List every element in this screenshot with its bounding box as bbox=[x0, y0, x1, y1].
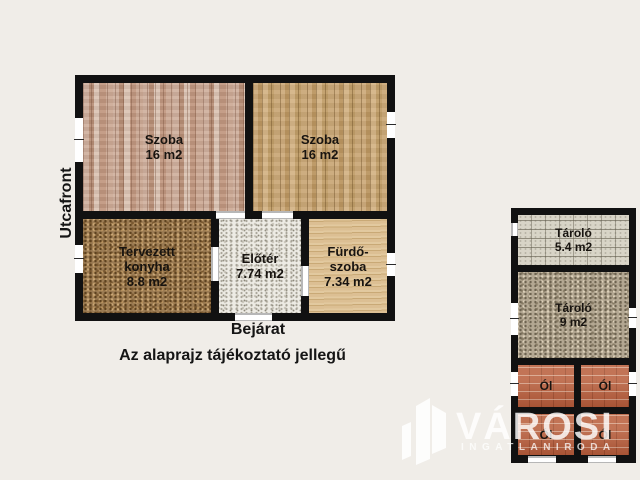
door-opening bbox=[301, 266, 309, 296]
door-opening bbox=[211, 247, 219, 281]
room-name: szoba bbox=[324, 259, 372, 274]
room-area: 9 m2 bbox=[555, 315, 592, 329]
door-opening bbox=[588, 456, 616, 463]
room-name: Tároló bbox=[555, 226, 592, 240]
door-opening bbox=[216, 211, 245, 219]
window-opening bbox=[387, 253, 395, 276]
window-opening bbox=[511, 372, 518, 396]
main-floor-plan: Szoba 16 m2 Szoba 16 m2 Tervezett konyha… bbox=[75, 75, 395, 321]
entrance-label: Bejárat bbox=[188, 321, 328, 339]
room-name: Ól bbox=[599, 428, 612, 442]
door-opening bbox=[528, 456, 556, 463]
room-area: 7.74 m2 bbox=[236, 266, 284, 281]
street-front-label: Utcafront bbox=[56, 148, 78, 258]
room-furdo: Fürdő- szoba 7.34 m2 bbox=[309, 219, 387, 313]
disclaimer-text: Az alaprajz tájékoztató jellegű bbox=[55, 347, 410, 365]
room-konyha: Tervezett konyha 8.8 m2 bbox=[83, 219, 211, 313]
room-pen-1: Ól bbox=[518, 365, 574, 407]
floor-plan-page: Szoba 16 m2 Szoba 16 m2 Tervezett konyha… bbox=[0, 0, 640, 480]
room-label: Tároló 5.4 m2 bbox=[555, 226, 592, 254]
door-opening bbox=[262, 211, 293, 219]
room-pen-2: Ól bbox=[581, 365, 629, 407]
room-area: 5.4 m2 bbox=[555, 240, 592, 254]
room-area: 8.8 m2 bbox=[119, 274, 175, 289]
room-name: Ól bbox=[540, 428, 553, 442]
outbuilding-floor-plan: Tároló 5.4 m2 Tároló 9 m2 Ól Ól Ól Ól bbox=[511, 208, 636, 463]
room-area: 7.34 m2 bbox=[324, 274, 372, 289]
room-pen-3: Ól bbox=[518, 414, 574, 455]
window-opening bbox=[629, 308, 636, 328]
room-label: Szoba 16 m2 bbox=[301, 132, 339, 162]
window-opening bbox=[387, 112, 395, 138]
window-opening bbox=[629, 372, 636, 396]
room-name: Szoba bbox=[301, 132, 339, 147]
room-name: Ól bbox=[599, 379, 612, 393]
window-opening bbox=[511, 303, 518, 335]
entrance-opening bbox=[235, 313, 272, 321]
room-name: konyha bbox=[119, 259, 175, 274]
room-label: Előtér 7.74 m2 bbox=[236, 251, 284, 281]
room-name: Tároló bbox=[555, 301, 592, 315]
room-label: Fürdő- szoba 7.34 m2 bbox=[324, 244, 372, 289]
room-eloter: Előtér 7.74 m2 bbox=[219, 219, 301, 313]
room-tarolo-small: Tároló 5.4 m2 bbox=[518, 215, 629, 265]
room-area: 16 m2 bbox=[145, 147, 183, 162]
room-szoba-left: Szoba 16 m2 bbox=[83, 83, 245, 211]
room-area: 16 m2 bbox=[301, 147, 339, 162]
buildings-icon bbox=[402, 396, 450, 468]
room-name: Előtér bbox=[236, 251, 284, 266]
door-opening bbox=[511, 223, 518, 236]
room-label: Tervezett konyha 8.8 m2 bbox=[119, 244, 175, 289]
room-pen-4: Ól bbox=[581, 414, 629, 455]
room-label: Tároló 9 m2 bbox=[555, 301, 592, 329]
room-name: Fürdő- bbox=[324, 244, 372, 259]
room-name: Ól bbox=[540, 379, 553, 393]
room-szoba-right: Szoba 16 m2 bbox=[253, 83, 387, 211]
room-name: Szoba bbox=[145, 132, 183, 147]
room-tarolo-large: Tároló 9 m2 bbox=[518, 272, 629, 358]
room-label: Szoba 16 m2 bbox=[145, 132, 183, 162]
room-name: Tervezett bbox=[119, 244, 175, 259]
